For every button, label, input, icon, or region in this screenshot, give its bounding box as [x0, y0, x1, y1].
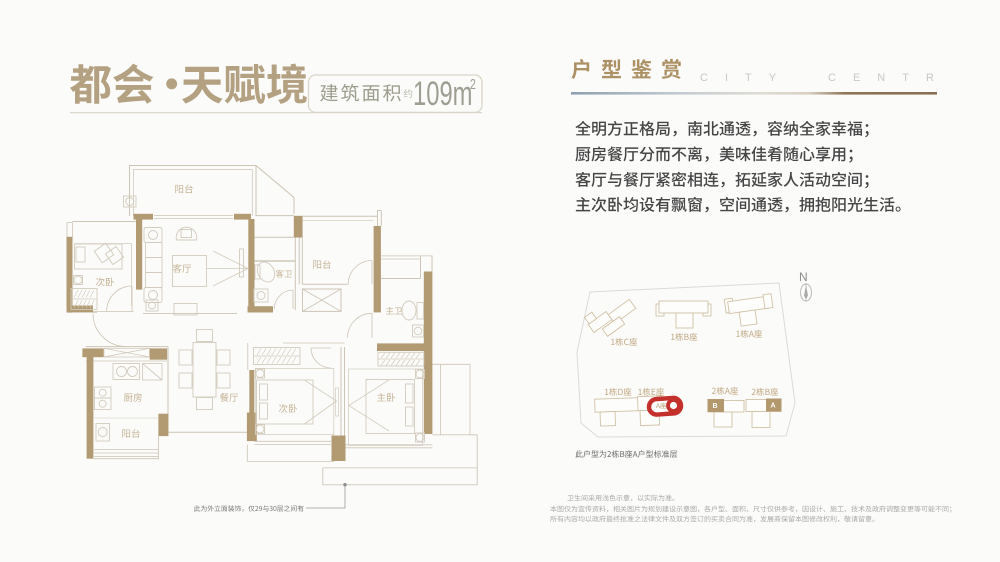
svg-text:N: N — [799, 270, 808, 284]
svg-text:109m: 109m — [413, 75, 473, 113]
svg-text:A: A — [771, 403, 776, 410]
svg-text:B: B — [713, 403, 718, 410]
svg-text:CENTR: CENTR — [828, 72, 951, 84]
svg-text:CITY: CITY — [700, 72, 793, 84]
svg-text:2: 2 — [470, 75, 476, 92]
